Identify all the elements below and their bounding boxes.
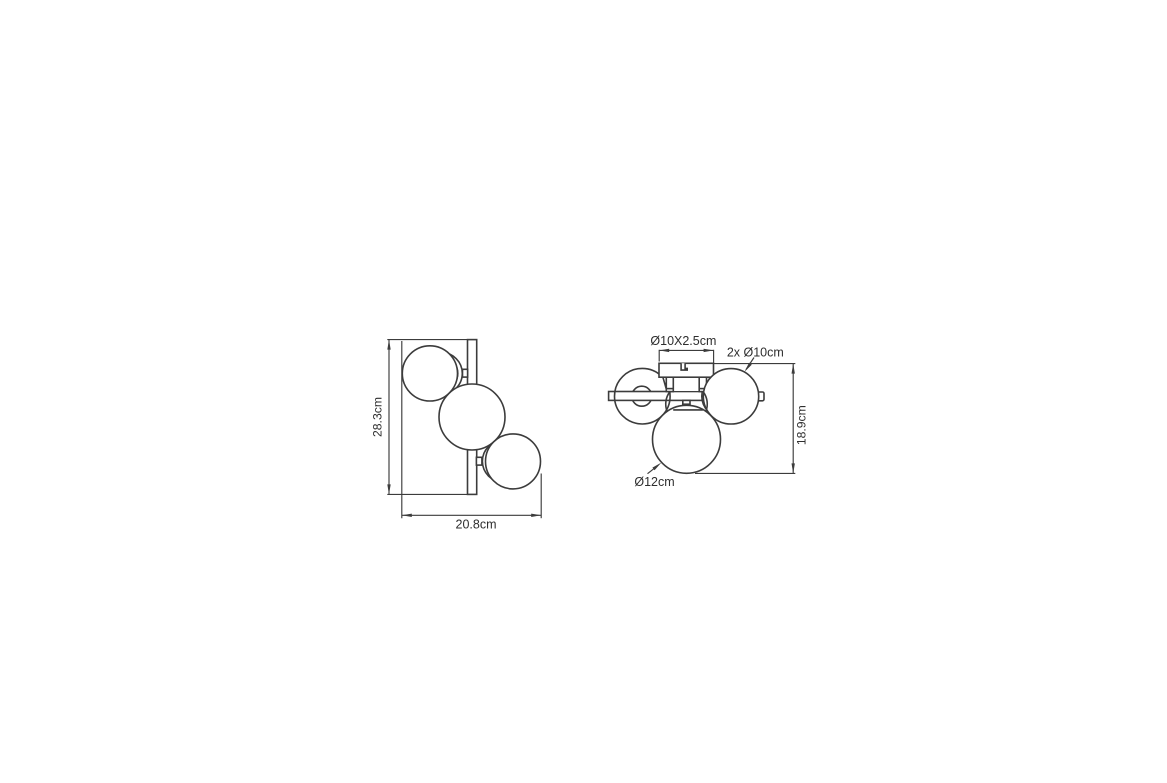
svg-text:18.9cm: 18.9cm bbox=[795, 405, 809, 445]
svg-text:2x Ø10cm: 2x Ø10cm bbox=[727, 346, 784, 360]
svg-text:Ø12cm: Ø12cm bbox=[634, 475, 674, 489]
svg-text:20.8cm: 20.8cm bbox=[456, 518, 497, 532]
svg-text:Ø10X2.5cm: Ø10X2.5cm bbox=[650, 334, 716, 348]
svg-text:28.3cm: 28.3cm bbox=[371, 397, 385, 437]
